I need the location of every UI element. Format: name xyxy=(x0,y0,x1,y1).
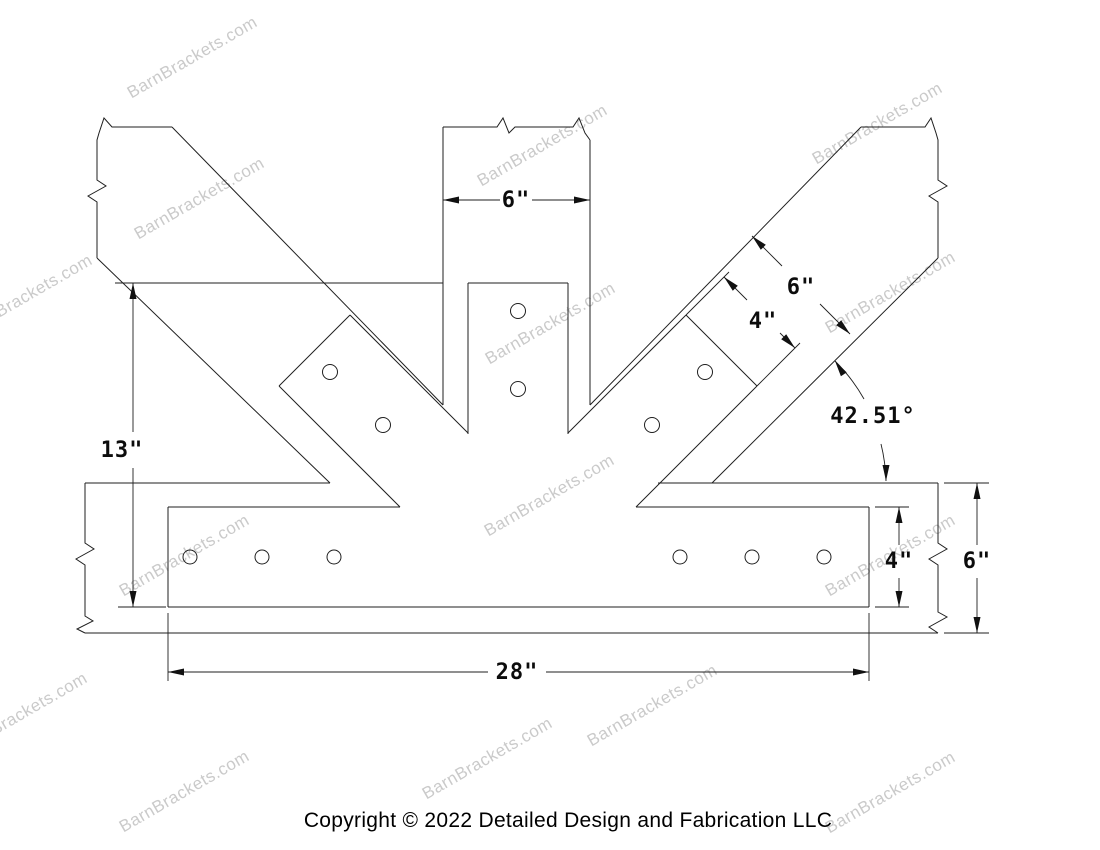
dimension-brace-angle: 42.51° xyxy=(830,361,915,481)
arrow-down-icon xyxy=(883,465,890,481)
dim-label-beam-height: 6" xyxy=(963,549,992,574)
dim-label-plate-length: 28" xyxy=(496,660,539,685)
right-diagonal-plate-upper-edge xyxy=(568,315,686,433)
bolt-hole xyxy=(817,550,831,564)
right-diagonal-plate-end-edge xyxy=(686,315,757,386)
watermark-text: BarnBrackets.com xyxy=(482,278,619,368)
left-diagonal-plate-upper-edge xyxy=(350,315,468,433)
arrow-up-icon xyxy=(974,483,981,499)
bolt-hole xyxy=(255,550,269,564)
left-diagonal-plate-end-edge xyxy=(279,315,350,386)
bolt-hole xyxy=(327,550,341,564)
copyright-text: Copyright © 2022 Detailed Design and Fab… xyxy=(304,809,832,832)
fan-bracket-drawing: BarnBrackets.com BarnBrackets.com BarnBr… xyxy=(0,0,1100,850)
beam-right-break-edge xyxy=(929,483,947,633)
arrow-up-left-icon xyxy=(835,361,847,376)
watermark-text: BarnBrackets.com xyxy=(116,510,253,600)
watermark-text: BarnBrackets.com xyxy=(124,12,261,102)
arrow-left-icon xyxy=(443,197,459,204)
bolt-hole xyxy=(673,550,687,564)
extension-line xyxy=(757,343,800,386)
arrow-down-icon xyxy=(974,617,981,633)
dim-label-post-width: 6" xyxy=(502,188,531,213)
arrow-down-icon xyxy=(896,591,903,607)
dim-label-plate-height: 4" xyxy=(885,549,914,574)
watermark-text: BarnBrackets.com xyxy=(584,660,721,750)
watermark-text: BarnBrackets.com xyxy=(809,78,946,168)
watermark-layer: BarnBrackets.com BarnBrackets.com BarnBr… xyxy=(0,12,959,837)
watermark-text: BarnBrackets.com xyxy=(822,747,959,837)
dim-label-brace-width: 6" xyxy=(787,275,816,300)
arrow-up-icon xyxy=(896,507,903,523)
left-brace-break-edge xyxy=(88,118,172,258)
dimension-plate-length: 28" xyxy=(168,613,869,685)
arrow-right-icon xyxy=(574,197,590,204)
right-brace-break-edge xyxy=(861,118,947,258)
bolt-hole xyxy=(645,418,660,433)
dimension-beam-height: 6" xyxy=(944,483,991,633)
watermark-text: BarnBrackets.com xyxy=(0,668,91,758)
left-brace-outer-edge xyxy=(172,127,443,405)
bolt-hole xyxy=(323,365,338,380)
watermark-text: BarnBrackets.com xyxy=(131,153,268,243)
arrow-right-icon xyxy=(853,669,869,676)
watermark-text: BarnBrackets.com xyxy=(0,250,96,340)
arrow-left-icon xyxy=(168,669,184,676)
bolt-hole xyxy=(511,382,526,397)
bolt-hole xyxy=(698,365,713,380)
right-brace-outer-edge xyxy=(590,127,861,405)
dimension-post-width: 6" xyxy=(443,188,590,213)
extension-line xyxy=(686,272,729,315)
dim-label-brace-plate-width: 4" xyxy=(749,309,778,334)
drawing-canvas: BarnBrackets.com BarnBrackets.com BarnBr… xyxy=(0,0,1100,850)
left-diagonal-plate-lower-edge xyxy=(279,386,400,507)
bolt-hole xyxy=(511,304,526,319)
dimension-overall-height: 13" xyxy=(101,283,443,607)
bolt-hole xyxy=(745,550,759,564)
arrow-down-icon xyxy=(130,591,137,607)
bolt-hole xyxy=(376,418,391,433)
beam-left-break-edge xyxy=(76,483,94,633)
right-brace-inner-edge xyxy=(712,258,938,483)
dim-label-overall-height: 13" xyxy=(101,438,144,463)
watermark-text: BarnBrackets.com xyxy=(116,746,253,836)
dim-label-brace-angle: 42.51° xyxy=(830,404,915,429)
watermark-text: BarnBrackets.com xyxy=(419,713,556,803)
watermark-text: BarnBrackets.com xyxy=(481,450,618,540)
right-diagonal-plate-lower-edge xyxy=(636,386,757,507)
